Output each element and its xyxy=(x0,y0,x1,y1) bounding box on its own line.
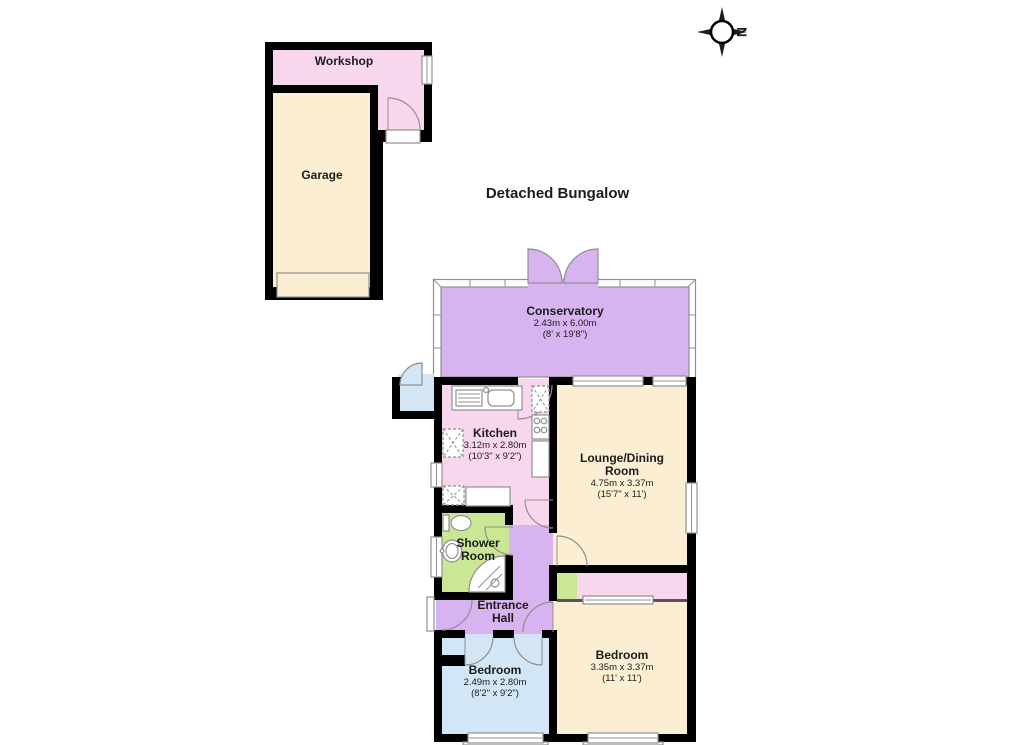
lounge-top-window-2 xyxy=(653,376,686,386)
sink-icon xyxy=(452,386,522,410)
lounge-label: Lounge/Dining Room 4.75m x 3.37m (15'7" … xyxy=(567,452,677,500)
toilet-icon xyxy=(443,515,471,531)
base-unit xyxy=(532,386,549,412)
conservatory-label: Conservatory 2.43m x 6.00m (8' x 19'8") xyxy=(465,305,665,340)
base-unit xyxy=(443,486,464,505)
kitchen-label: Kitchen 3.12m x 2.80m (10'3" x 9'2") xyxy=(435,427,555,462)
lounge-top-window-1 xyxy=(573,376,643,386)
bedroom-second-label: Bedroom 2.49m x 2.80m (8'2" x 9'2") xyxy=(440,664,550,699)
bedroom-second-window xyxy=(463,733,548,745)
wardrobe-sliding-door xyxy=(583,596,653,604)
floorplan: Detached Bungalow N Workshop Garage Cons… xyxy=(0,0,1024,745)
floorplan-drawing xyxy=(0,0,1024,745)
bedroom-main-window xyxy=(583,733,663,745)
garage-door xyxy=(277,273,369,297)
garage-label: Garage xyxy=(262,169,382,182)
lounge-side-window xyxy=(686,483,697,533)
page-title: Detached Bungalow xyxy=(430,185,685,202)
workshop-door-threshold xyxy=(386,130,420,143)
shower-room-label: Shower Room xyxy=(443,537,513,563)
entrance-hall-label: Entrance Hall xyxy=(467,599,539,625)
french-doors xyxy=(528,249,598,283)
porch-door-arc xyxy=(400,363,422,385)
workshop-label: Workshop xyxy=(284,55,404,68)
shower-window xyxy=(431,537,442,577)
bedroom-main-label: Bedroom 3.35m x 3.37m (11' x 11') xyxy=(567,649,677,684)
workshop-window xyxy=(422,56,432,84)
kitchen-appliance xyxy=(466,487,510,506)
compass-north-label: N xyxy=(734,27,750,37)
kitchen-window xyxy=(431,463,442,487)
